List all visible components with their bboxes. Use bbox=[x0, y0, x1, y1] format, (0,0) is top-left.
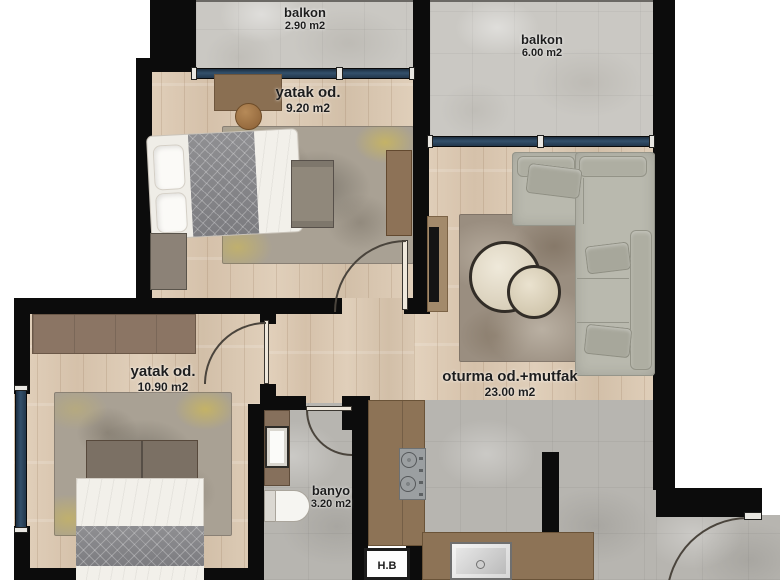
window-bedroom-large bbox=[15, 390, 27, 528]
tv bbox=[429, 227, 439, 302]
sheet-fold bbox=[76, 566, 204, 580]
window-frame-cap bbox=[191, 67, 197, 80]
sofa-seam bbox=[577, 278, 629, 279]
window-frame-cap bbox=[537, 135, 544, 148]
window-frame-cap bbox=[336, 67, 343, 80]
wall bbox=[248, 404, 264, 580]
pillow bbox=[153, 144, 186, 191]
nightstand bbox=[291, 160, 334, 228]
utility-shaft bbox=[364, 548, 410, 580]
coffee-table-small bbox=[507, 265, 561, 319]
stool bbox=[235, 103, 262, 130]
wardrobe bbox=[32, 314, 196, 354]
wall bbox=[542, 452, 559, 542]
balcony-rail-small bbox=[196, 0, 414, 2]
throw-pillow bbox=[525, 163, 582, 199]
window-frame-cap bbox=[427, 135, 433, 148]
cooktop-knobs bbox=[419, 454, 423, 496]
wall bbox=[264, 396, 306, 410]
throw-pillow bbox=[584, 324, 633, 359]
window-frame-cap bbox=[14, 527, 28, 533]
throw-pillow bbox=[584, 241, 631, 274]
wall bbox=[262, 298, 342, 314]
entry-door-frame-cap bbox=[744, 512, 762, 520]
wall bbox=[653, 0, 675, 490]
cabinet bbox=[150, 233, 187, 290]
window-frame-cap bbox=[649, 135, 655, 148]
balcony-rail-large bbox=[430, 0, 654, 2]
burner bbox=[401, 452, 417, 468]
floor-plan: balkon 2.90 m2 balkon 6.00 m2 yatak od. … bbox=[0, 0, 780, 580]
window-frame-cap bbox=[14, 385, 28, 391]
wall bbox=[413, 0, 430, 148]
bed-large bbox=[76, 478, 204, 580]
floor-balcony-small bbox=[196, 0, 414, 72]
duvet bbox=[76, 526, 204, 566]
sofa-back-cushion bbox=[579, 156, 647, 177]
floor-hallway bbox=[264, 298, 430, 412]
bathroom-sink bbox=[265, 426, 289, 468]
side-desk bbox=[386, 150, 412, 236]
wall bbox=[14, 298, 276, 314]
sofa-seam bbox=[577, 322, 629, 323]
sofa-armrest bbox=[630, 230, 652, 370]
headboard bbox=[86, 440, 198, 480]
pillow bbox=[155, 192, 188, 234]
burner bbox=[400, 476, 416, 492]
window-frame-cap bbox=[409, 67, 415, 80]
floor-balcony-large bbox=[430, 0, 654, 138]
sink-drain bbox=[476, 560, 485, 569]
bed-small bbox=[146, 128, 305, 242]
duvet bbox=[188, 131, 259, 236]
sheet bbox=[76, 478, 204, 528]
toilet-bowl bbox=[275, 490, 310, 522]
sofa-seam bbox=[583, 178, 584, 224]
